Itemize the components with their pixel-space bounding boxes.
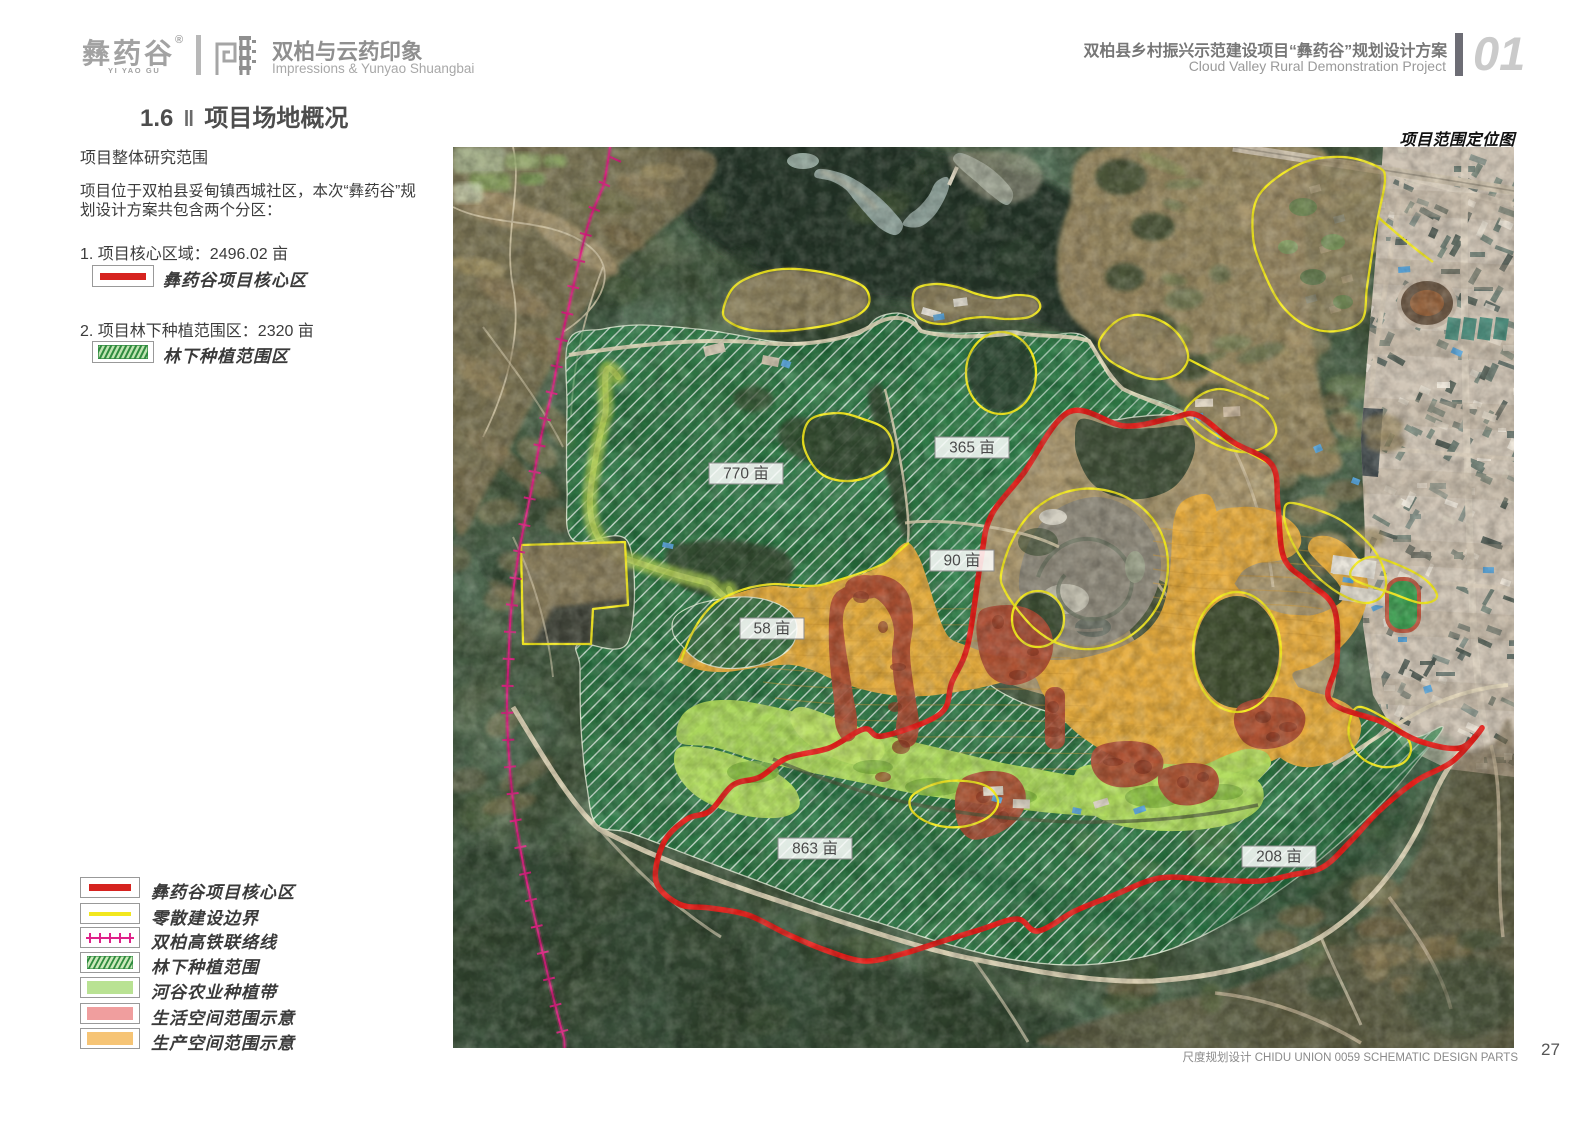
svg-text:90 亩: 90 亩	[943, 552, 980, 570]
svg-text:365 亩: 365 亩	[949, 439, 995, 457]
svg-text:770 亩: 770 亩	[723, 465, 769, 483]
svg-text:58 亩: 58 亩	[753, 620, 790, 638]
svg-text:863 亩: 863 亩	[792, 840, 838, 858]
svg-text:208 亩: 208 亩	[1256, 848, 1302, 866]
